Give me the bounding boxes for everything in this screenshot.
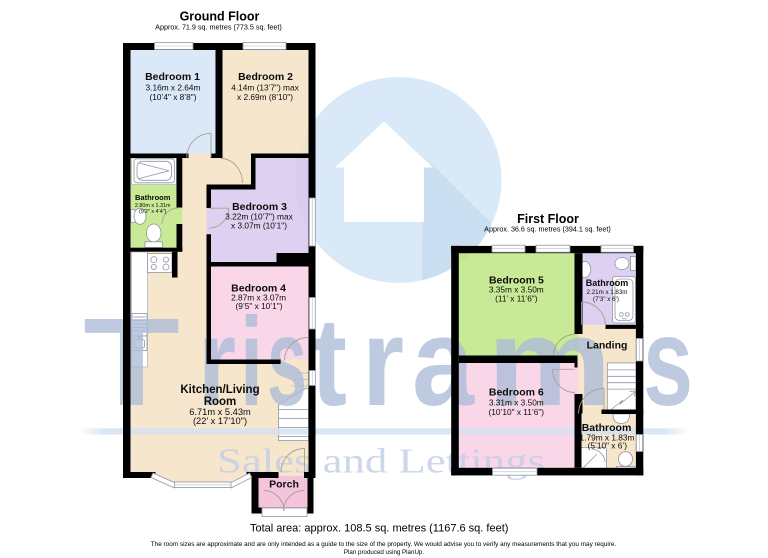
svg-text:Landing: Landing [587,340,628,352]
svg-text:(10’4" x 8’8"): (10’4" x 8’8") [150,92,197,102]
svg-text:Ground Floor: Ground Floor [180,10,260,24]
svg-text:The room sizes are approximate: The room sizes are approximate and are o… [151,541,617,548]
svg-text:(5’10" x 6’): (5’10" x 6’) [588,440,628,450]
svg-text:(7’3" x 6’): (7’3" x 6’) [593,296,619,303]
svg-text:t: t [311,293,347,432]
svg-text:(10’10" x 11’6"): (10’10" x 11’6") [489,407,545,417]
svg-text:Approx. 71.9 sq. metres (773.5: Approx. 71.9 sq. metres (773.5 sq. feet) [155,23,282,32]
svg-text:Total area: approx. 108.5 sq.: Total area: approx. 108.5 sq. metres (11… [250,523,508,535]
svg-text:T: T [83,293,180,432]
svg-text:x 3.07m (10’1"): x 3.07m (10’1") [231,221,287,231]
svg-text:(11’ x 11’6"): (11’ x 11’6") [495,294,538,304]
svg-text:r: r [362,293,404,432]
svg-text:Approx. 36.6 sq. metres (394.1: Approx. 36.6 sq. metres (394.1 sq. feet) [484,225,611,234]
svg-text:Bedroom 2: Bedroom 2 [238,71,293,83]
svg-text:Bathroom: Bathroom [586,278,629,288]
svg-text:s: s [643,293,693,432]
svg-text:2.21m x 1.83m: 2.21m x 1.83m [587,289,628,296]
svg-text:Bathroom: Bathroom [135,193,171,202]
svg-text:4.14m (13’7") max: 4.14m (13’7") max [231,83,299,93]
svg-text:Kitchen/Living: Kitchen/Living [180,384,259,396]
svg-text:x 2.69m (8’10"): x 2.69m (8’10") [237,92,293,102]
svg-text:3.31m x 3.50m: 3.31m x 3.50m [489,398,544,408]
svg-text:Porch: Porch [269,479,299,491]
svg-text:(9’5" x 10’1"): (9’5" x 10’1") [236,301,283,311]
svg-text:Bedroom 1: Bedroom 1 [145,71,200,83]
svg-text:(9’2" x 4’4"): (9’2" x 4’4") [139,209,167,215]
svg-text:(22’ x 17’10"): (22’ x 17’10") [193,416,247,426]
svg-text:3.16m x 2.64m: 3.16m x 2.64m [146,83,201,93]
svg-text:2.80m x 1.31m: 2.80m x 1.31m [135,203,171,209]
svg-text:Plan produced using PlanUp.: Plan produced using PlanUp. [344,549,424,556]
